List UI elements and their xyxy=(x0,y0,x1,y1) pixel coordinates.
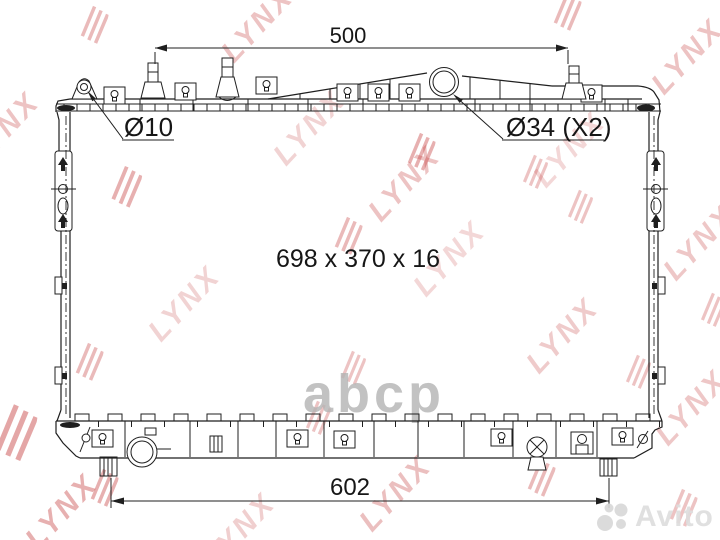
mounting-pin-right xyxy=(562,66,586,99)
filler-neck xyxy=(430,68,459,97)
side-frame-left xyxy=(51,112,76,421)
avito-watermark: Avito xyxy=(596,497,714,537)
hole-diameter-label: Ø10 xyxy=(124,112,173,142)
overflow-pipe-stub xyxy=(216,58,239,101)
outlet-pipe xyxy=(127,428,171,467)
mounting-pin-left xyxy=(141,63,165,98)
product-image: LYNXLYNXLYNXLYNXLYNXLYNXLYNXLYNXLYNXLYNX… xyxy=(0,0,720,540)
drain-plug xyxy=(527,437,547,470)
dim-602-label: 602 xyxy=(330,474,370,501)
drain-hatch-left xyxy=(100,457,117,476)
avito-watermark-text: Avito xyxy=(635,502,714,532)
dimension-500: 500 xyxy=(155,23,568,64)
dimension-602: 602 xyxy=(111,474,609,508)
avito-logo-icon xyxy=(596,497,632,537)
dim-500-label: 500 xyxy=(330,23,367,48)
side-frame-right xyxy=(643,112,668,421)
bottom-tank xyxy=(56,414,662,476)
radiator-technical-drawing: 500 Ø10 Ø34 (X2) 698 x 370 x 16 602 xyxy=(0,0,720,540)
mount-hole-bracket xyxy=(72,79,97,99)
drain-hatch-right xyxy=(600,459,617,476)
top-tank xyxy=(56,58,661,112)
overall-size-label: 698 x 370 x 16 xyxy=(276,245,440,273)
filler-neck-label: Ø34 (X2) xyxy=(506,112,612,142)
